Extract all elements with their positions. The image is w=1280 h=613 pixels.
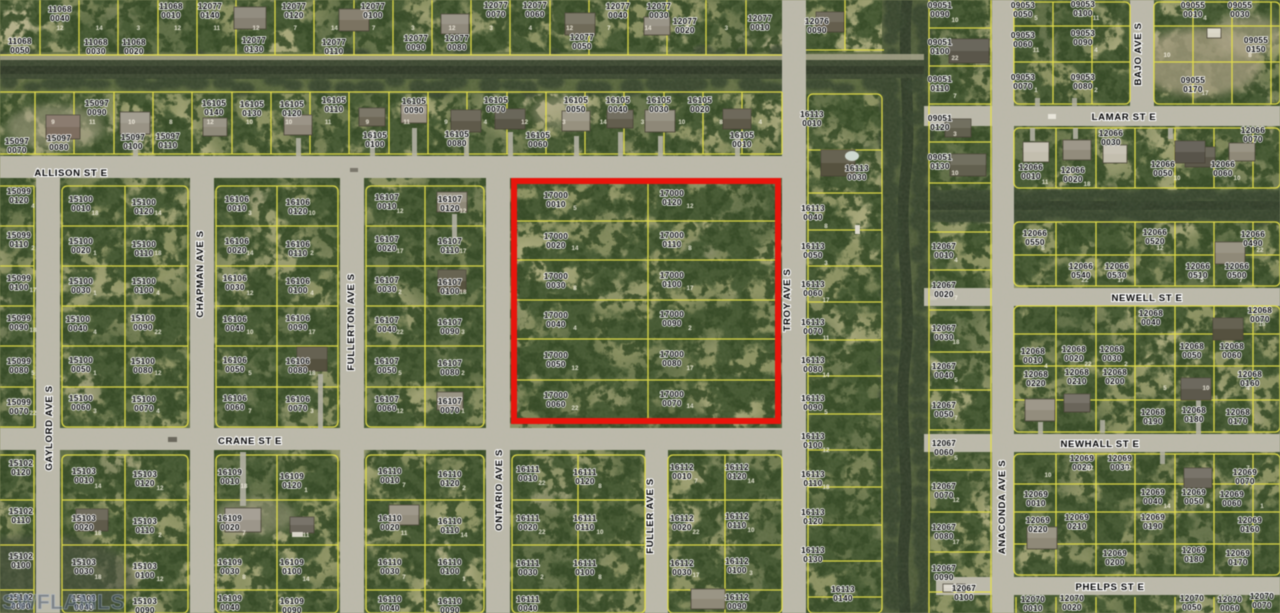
svg-text:12: 12: [253, 25, 260, 32]
svg-text:3: 3: [248, 210, 252, 217]
svg-text:2: 2: [158, 532, 162, 539]
svg-text:161070080: 161070080: [438, 359, 462, 377]
svg-text:22: 22: [1082, 277, 1089, 284]
svg-text:18: 18: [95, 530, 102, 537]
svg-text:120680030: 120680030: [1100, 345, 1124, 363]
svg-text:12: 12: [823, 447, 830, 454]
svg-text:12: 12: [521, 119, 528, 126]
svg-text:12: 12: [1157, 245, 1164, 252]
svg-text:151000040: 151000040: [66, 315, 90, 333]
svg-text:120770010: 120770010: [748, 14, 772, 32]
svg-text:5: 5: [573, 205, 577, 212]
svg-text:120690050: 120690050: [1182, 488, 1206, 506]
svg-text:120690070: 120690070: [1233, 468, 1257, 486]
svg-text:TROY AVE S: TROY AVE S: [782, 269, 793, 332]
svg-text:3: 3: [93, 408, 97, 415]
svg-text:161110120: 161110120: [573, 468, 597, 486]
svg-text:12: 12: [247, 290, 254, 297]
svg-text:14: 14: [645, 25, 652, 32]
svg-text:12: 12: [449, 25, 456, 32]
svg-text:161070050: 161070050: [375, 357, 399, 375]
svg-text:22: 22: [539, 529, 546, 536]
svg-text:8: 8: [598, 483, 602, 490]
svg-text:22: 22: [155, 329, 162, 336]
svg-text:170000020: 170000020: [544, 232, 568, 250]
svg-text:151030110: 151030110: [133, 517, 157, 535]
svg-text:120670020: 120670020: [932, 281, 956, 299]
svg-text:22: 22: [30, 410, 37, 417]
svg-text:3: 3: [824, 260, 828, 267]
svg-text:161050120: 161050120: [280, 100, 304, 118]
svg-text:3: 3: [461, 329, 465, 336]
svg-text:110680030: 110680030: [84, 38, 108, 56]
svg-text:7: 7: [685, 25, 689, 32]
svg-text:18: 18: [92, 210, 99, 217]
svg-text:11: 11: [401, 530, 408, 537]
svg-text:120670050: 120670050: [932, 401, 956, 419]
svg-text:170000040: 170000040: [544, 311, 568, 329]
svg-text:161060080: 161060080: [286, 357, 310, 375]
svg-text:120690190: 120690190: [1141, 513, 1165, 531]
svg-text:161060120: 161060120: [286, 198, 310, 216]
svg-text:11: 11: [303, 532, 310, 539]
svg-text:12: 12: [397, 408, 404, 415]
svg-text:7: 7: [402, 482, 406, 489]
svg-text:161060030: 161060030: [223, 274, 247, 292]
svg-text:17: 17: [953, 539, 960, 546]
svg-text:12: 12: [953, 497, 960, 504]
svg-text:17: 17: [687, 285, 694, 292]
svg-text:18: 18: [241, 483, 248, 490]
svg-text:120680160: 120680160: [1238, 370, 1262, 388]
svg-text:090510100: 090510100: [928, 38, 952, 56]
svg-text:151000080: 151000080: [131, 357, 155, 375]
svg-text:4: 4: [529, 25, 533, 32]
svg-text:161050050: 161050050: [564, 96, 588, 114]
svg-text:161130060: 161130060: [801, 280, 825, 298]
svg-text:120680020: 120680020: [1062, 345, 1086, 363]
svg-text:120670100: 120670100: [952, 584, 976, 602]
svg-text:10: 10: [678, 119, 685, 126]
svg-text:161100010: 161100010: [378, 467, 402, 485]
svg-text:120690160: 120690160: [1238, 516, 1262, 534]
svg-text:7: 7: [402, 574, 406, 581]
svg-text:161060100: 161060100: [286, 277, 310, 295]
svg-text:14: 14: [95, 483, 102, 490]
svg-text:14: 14: [572, 245, 579, 252]
svg-text:120680050: 120680050: [1180, 342, 1204, 360]
svg-text:161110040: 161110040: [516, 595, 540, 613]
svg-text:12: 12: [157, 485, 164, 492]
svg-text:2: 2: [462, 485, 466, 492]
svg-text:3: 3: [562, 119, 566, 126]
svg-text:161130040: 161130040: [801, 204, 825, 222]
svg-text:161050080: 161050080: [445, 130, 469, 148]
svg-text:14: 14: [331, 25, 338, 32]
svg-text:161060090: 161060090: [286, 314, 310, 332]
svg-text:SWFLAMLS: SWFLAMLS: [2, 591, 125, 613]
svg-text:161130070: 161130070: [801, 318, 825, 336]
svg-text:3: 3: [725, 25, 729, 32]
svg-text:5: 5: [954, 377, 958, 384]
svg-text:161090120: 161090120: [280, 472, 304, 490]
svg-text:151030090: 151030090: [133, 597, 157, 613]
svg-text:120680060: 120680060: [1220, 342, 1244, 360]
svg-text:120690180: 120690180: [1182, 546, 1206, 564]
svg-text:18: 18: [95, 574, 102, 581]
svg-text:161050020: 161050020: [688, 96, 712, 114]
svg-text:14: 14: [823, 372, 830, 379]
svg-text:150970090: 150970090: [85, 99, 109, 117]
svg-text:FULLER AVE S: FULLER AVE S: [645, 478, 656, 553]
svg-text:ALLISON ST E: ALLISON ST E: [34, 168, 107, 179]
svg-text:17: 17: [1202, 90, 1209, 97]
svg-text:18: 18: [155, 250, 162, 257]
svg-text:120660510: 120660510: [1186, 262, 1210, 280]
svg-text:12: 12: [207, 119, 214, 126]
svg-text:161120030: 161120030: [670, 559, 694, 577]
svg-text:12: 12: [155, 370, 162, 377]
svg-text:120680220: 120680220: [1024, 370, 1048, 388]
svg-text:161120100: 161120100: [725, 557, 749, 575]
svg-text:NEWHALL ST E: NEWHALL ST E: [1061, 439, 1140, 450]
svg-text:110680050: 110680050: [8, 37, 32, 55]
svg-text:5: 5: [954, 455, 958, 462]
svg-text:161100120: 161100120: [438, 470, 462, 488]
svg-text:120660500: 120660500: [1225, 262, 1249, 280]
svg-text:161130010: 161130010: [800, 110, 824, 128]
svg-text:120770050: 120770050: [570, 33, 594, 51]
svg-text:2: 2: [398, 289, 402, 296]
svg-text:2: 2: [1124, 361, 1128, 368]
svg-text:170000010: 170000010: [544, 191, 568, 209]
svg-text:170000120: 170000120: [660, 189, 684, 207]
svg-text:10: 10: [285, 119, 292, 126]
svg-text:120660020: 120660020: [1061, 166, 1085, 184]
svg-text:151030030: 151030030: [72, 558, 96, 576]
svg-text:18: 18: [1084, 181, 1091, 188]
svg-text:161050140: 161050140: [202, 99, 226, 117]
svg-text:22: 22: [397, 329, 404, 336]
svg-text:12: 12: [1125, 465, 1132, 472]
svg-text:12: 12: [174, 25, 181, 32]
svg-text:110680040: 110680040: [48, 5, 72, 23]
svg-text:090550030: 090550030: [1228, 1, 1252, 19]
svg-text:PHELPS ST E: PHELPS ST E: [1076, 582, 1145, 593]
svg-text:161130140: 161130140: [831, 585, 855, 603]
svg-text:161070070: 161070070: [438, 397, 462, 415]
svg-text:14: 14: [155, 210, 162, 217]
svg-text:161060070: 161060070: [286, 395, 310, 413]
svg-text:151030100: 151030100: [133, 562, 157, 580]
svg-text:NEWELL ST E: NEWELL ST E: [1112, 293, 1183, 304]
svg-text:12: 12: [397, 208, 404, 215]
svg-text:120680210: 120680210: [1065, 368, 1089, 386]
svg-text:151030120: 151030120: [133, 470, 157, 488]
svg-text:4: 4: [156, 290, 160, 297]
svg-text:120770080: 120770080: [445, 34, 469, 52]
svg-text:120700070: 120700070: [1250, 592, 1274, 610]
svg-text:161090100: 161090100: [280, 558, 304, 576]
svg-text:161130090: 161130090: [801, 394, 825, 412]
svg-text:120660010: 120660010: [1019, 163, 1043, 181]
svg-text:4: 4: [93, 329, 97, 336]
svg-text:10: 10: [309, 210, 316, 217]
svg-text:5: 5: [398, 370, 402, 377]
svg-text:150970070: 150970070: [5, 137, 29, 155]
svg-text:17: 17: [460, 248, 467, 255]
svg-text:150990080: 150990080: [7, 357, 31, 375]
svg-text:5: 5: [1163, 385, 1167, 392]
svg-text:10: 10: [1234, 175, 1241, 182]
svg-text:2: 2: [688, 325, 692, 332]
svg-text:1: 1: [93, 250, 97, 257]
svg-text:7: 7: [293, 25, 297, 32]
svg-text:8: 8: [1248, 52, 1252, 59]
svg-text:151000050: 151000050: [69, 356, 93, 374]
svg-text:120690210: 120690210: [1065, 513, 1089, 531]
svg-text:120670060: 120670060: [932, 439, 956, 457]
svg-text:4: 4: [31, 203, 35, 210]
svg-text:17: 17: [397, 248, 404, 255]
svg-text:151000020: 151000020: [69, 237, 93, 255]
svg-text:120700010: 120700010: [1021, 595, 1045, 613]
svg-text:4: 4: [573, 325, 577, 332]
svg-text:151020100: 151020100: [9, 552, 33, 570]
svg-text:161100100: 161100100: [438, 558, 462, 576]
svg-text:170000090: 170000090: [660, 310, 684, 328]
svg-text:150990070: 150990070: [7, 398, 31, 416]
svg-text:120770090: 120770090: [404, 34, 428, 52]
svg-text:5: 5: [31, 370, 35, 377]
svg-text:161050030: 161050030: [647, 96, 671, 114]
svg-text:22: 22: [693, 529, 700, 536]
svg-text:120690200: 120690200: [1103, 549, 1127, 567]
svg-text:150970110: 150970110: [156, 132, 180, 150]
svg-text:120770130: 120770130: [242, 36, 266, 54]
svg-text:090530050: 090530050: [1011, 1, 1035, 19]
svg-text:170000030: 170000030: [544, 272, 568, 290]
svg-text:090510090: 090510090: [928, 1, 952, 19]
svg-text:17: 17: [693, 572, 700, 579]
svg-text:170000080: 170000080: [660, 350, 684, 368]
svg-text:8: 8: [1206, 503, 1210, 510]
svg-text:161090020: 161090020: [218, 514, 242, 532]
svg-text:170000100: 170000100: [660, 271, 684, 289]
svg-text:7: 7: [1246, 465, 1250, 472]
svg-text:10: 10: [1164, 52, 1171, 59]
svg-text:110680020: 110680020: [122, 38, 146, 56]
svg-text:161100030: 161100030: [378, 558, 402, 576]
svg-text:1: 1: [462, 576, 466, 583]
svg-text:5: 5: [248, 370, 252, 377]
svg-text:7: 7: [954, 415, 958, 422]
svg-text:151000070: 151000070: [132, 395, 156, 413]
svg-text:161060050: 161060050: [223, 356, 247, 374]
svg-text:161050110: 161050110: [322, 96, 346, 114]
svg-text:4: 4: [1094, 47, 1098, 54]
svg-text:3: 3: [641, 119, 645, 126]
svg-text:22: 22: [539, 480, 546, 487]
svg-text:4: 4: [1044, 363, 1048, 370]
svg-text:161120020: 161120020: [670, 514, 694, 532]
svg-text:120690220: 120690220: [1026, 516, 1050, 534]
svg-text:120690060: 120690060: [1220, 490, 1244, 508]
svg-text:22: 22: [952, 55, 959, 62]
svg-text:1: 1: [1034, 87, 1038, 94]
svg-text:14: 14: [1164, 503, 1171, 510]
svg-text:161090090: 161090090: [280, 597, 304, 613]
svg-text:12: 12: [157, 576, 164, 583]
svg-text:1: 1: [93, 370, 97, 377]
svg-text:151000110: 151000110: [132, 240, 156, 258]
svg-text:150990120: 150990120: [7, 187, 31, 205]
svg-text:120680040: 120680040: [1139, 309, 1163, 327]
svg-text:8: 8: [719, 119, 723, 126]
svg-text:8: 8: [598, 574, 602, 581]
svg-text:4: 4: [484, 119, 488, 126]
svg-text:17: 17: [823, 297, 830, 304]
svg-text:3: 3: [411, 25, 415, 32]
svg-text:12: 12: [572, 365, 579, 372]
svg-text:161130120: 161130120: [801, 508, 825, 526]
svg-text:090530090: 090530090: [1071, 29, 1095, 47]
svg-text:3: 3: [749, 570, 753, 577]
svg-text:120770120: 120770120: [282, 2, 306, 20]
svg-text:151020110: 151020110: [9, 507, 33, 525]
svg-text:8: 8: [242, 574, 246, 581]
svg-text:090530100: 090530100: [1071, 0, 1095, 18]
svg-text:120770070: 120770070: [484, 1, 508, 19]
svg-text:10: 10: [246, 119, 253, 126]
svg-text:120660060: 120660060: [1211, 160, 1235, 178]
svg-text:8: 8: [573, 285, 577, 292]
svg-text:161130080: 161130080: [801, 356, 825, 374]
svg-text:18: 18: [1259, 321, 1266, 328]
svg-text:120680180: 120680180: [1182, 406, 1206, 424]
svg-text:17: 17: [1118, 277, 1125, 284]
svg-text:3: 3: [137, 25, 141, 32]
svg-text:120760090: 120760090: [805, 17, 829, 35]
svg-text:151020120: 151020120: [9, 459, 33, 477]
svg-text:161050090: 161050090: [402, 97, 426, 115]
svg-text:10: 10: [247, 329, 254, 336]
svg-text:151000030: 151000030: [69, 277, 93, 295]
svg-text:170000060: 170000060: [544, 391, 568, 409]
svg-text:9: 9: [444, 119, 448, 126]
svg-text:120770100: 120770100: [361, 2, 385, 20]
svg-text:12: 12: [57, 25, 64, 32]
svg-text:120680170: 120680170: [1226, 408, 1250, 426]
svg-text:161110010: 161110010: [516, 465, 540, 483]
svg-text:7: 7: [607, 25, 611, 32]
svg-text:18: 18: [823, 484, 830, 491]
svg-text:120680200: 120680200: [1103, 368, 1127, 386]
svg-text:CRANE ST E: CRANE ST E: [218, 436, 282, 447]
svg-text:FULLERTON AVE S: FULLERTON AVE S: [346, 273, 357, 370]
svg-text:11: 11: [823, 335, 830, 342]
svg-text:2: 2: [1094, 87, 1098, 94]
svg-text:10: 10: [748, 527, 755, 534]
svg-text:161090010: 161090010: [218, 468, 242, 486]
svg-text:120690170: 120690170: [1226, 549, 1250, 567]
svg-text:090530070: 090530070: [1011, 73, 1035, 91]
svg-text:12: 12: [687, 203, 694, 210]
svg-text:4: 4: [954, 257, 958, 264]
svg-text:14: 14: [303, 576, 310, 583]
svg-text:2: 2: [31, 245, 35, 252]
svg-text:110680010: 110680010: [159, 2, 183, 20]
svg-text:ANACONDA AVE S: ANACONDA AVE S: [997, 460, 1008, 554]
svg-text:5: 5: [824, 409, 828, 416]
svg-text:3: 3: [310, 408, 314, 415]
svg-text:150990090: 150990090: [7, 314, 31, 332]
svg-text:3: 3: [953, 131, 957, 138]
svg-text:5: 5: [1200, 277, 1204, 284]
svg-text:ONTARIO AVE S: ONTARIO AVE S: [494, 449, 505, 531]
svg-text:12: 12: [460, 208, 467, 215]
svg-text:090510110: 090510110: [928, 75, 952, 93]
svg-text:17: 17: [309, 329, 316, 336]
svg-text:161130030: 161130030: [845, 164, 869, 182]
svg-text:151000010: 151000010: [69, 195, 93, 213]
svg-text:LAMAR ST E: LAMAR ST E: [1092, 112, 1157, 123]
svg-text:161130050: 161130050: [801, 242, 825, 260]
svg-text:11: 11: [89, 119, 96, 126]
svg-text:7: 7: [954, 295, 958, 302]
svg-text:11: 11: [325, 119, 332, 126]
svg-text:11: 11: [403, 119, 410, 126]
svg-text:4: 4: [1246, 385, 1250, 392]
svg-text:14: 14: [600, 119, 607, 126]
svg-text:14: 14: [687, 403, 694, 410]
svg-text:4: 4: [1203, 15, 1207, 22]
svg-text:14: 14: [461, 532, 468, 539]
svg-text:120670010: 120670010: [932, 242, 956, 260]
svg-text:22: 22: [1085, 361, 1092, 368]
svg-text:120700060: 120700060: [1218, 595, 1242, 613]
svg-text:161050130: 161050130: [240, 100, 264, 118]
svg-text:161110030: 161110030: [516, 559, 540, 577]
svg-text:120700020: 120700020: [1060, 594, 1084, 612]
svg-text:10: 10: [1045, 472, 1052, 479]
svg-text:161060040: 161060040: [223, 315, 247, 333]
svg-text:1: 1: [461, 408, 465, 415]
svg-text:120770140: 120770140: [198, 2, 222, 20]
svg-text:CHAPMAN AVE S: CHAPMAN AVE S: [195, 230, 206, 317]
svg-text:151030010: 151030010: [72, 467, 96, 485]
svg-text:161060060: 161060060: [223, 394, 247, 412]
svg-text:161050010: 161050010: [730, 131, 754, 149]
svg-text:120660070: 120660070: [1241, 126, 1265, 144]
svg-text:12: 12: [1087, 465, 1094, 472]
svg-text:161090040: 161090040: [218, 594, 242, 612]
svg-text:120770030: 120770030: [647, 2, 671, 20]
svg-text:3: 3: [489, 25, 493, 32]
svg-text:170000070: 170000070: [660, 390, 684, 408]
svg-text:7: 7: [1239, 277, 1243, 284]
svg-text:14: 14: [247, 250, 254, 257]
svg-text:4: 4: [759, 119, 763, 126]
svg-text:10: 10: [952, 17, 959, 24]
svg-text:161100090: 161100090: [438, 597, 462, 613]
svg-text:161110110: 161110110: [573, 514, 597, 532]
svg-text:120770040: 120770040: [606, 2, 630, 20]
svg-text:090530080: 090530080: [1071, 73, 1095, 91]
svg-text:120670040: 120670040: [932, 362, 956, 380]
svg-text:161130130: 161130130: [801, 546, 825, 564]
svg-text:11: 11: [1042, 179, 1049, 186]
